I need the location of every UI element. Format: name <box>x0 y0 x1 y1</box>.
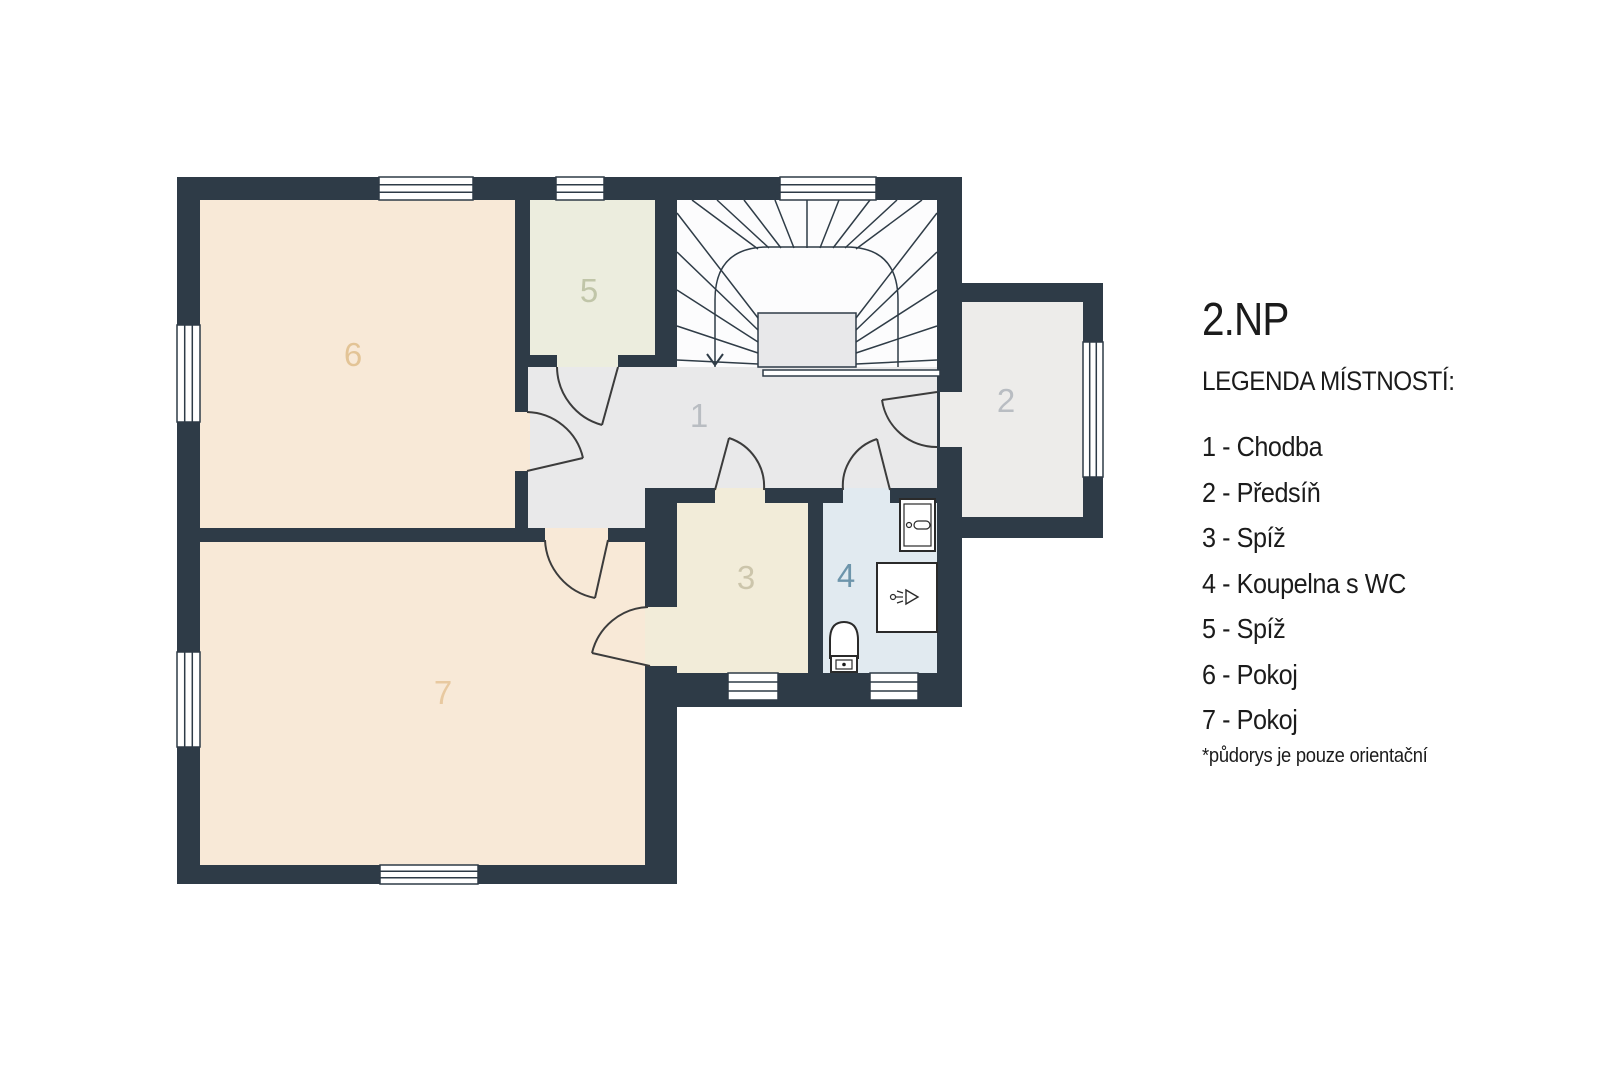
door-gap-room7-room3 <box>645 607 677 666</box>
window-top-room5 <box>556 177 604 200</box>
legend-heading: LEGENDA MÍSTNOSTÍ: <box>1202 366 1455 397</box>
window-left-room6 <box>177 325 200 422</box>
legend-item-4: 4 - Koupelna s WC <box>1202 561 1406 607</box>
legend-item-2: 2 - Předsíň <box>1202 470 1406 516</box>
door-gap-room6 <box>515 412 530 471</box>
window-bottom-room3 <box>728 673 778 700</box>
legend-items: 1 - Chodba 2 - Předsíň 3 - Spíž 4 - Koup… <box>1202 424 1429 743</box>
sink-icon <box>900 499 935 551</box>
window-top-stairs <box>780 177 876 200</box>
room-label-4: 4 <box>837 557 855 594</box>
legend-item-5: 5 - Spíž <box>1202 606 1406 652</box>
room-7-floor <box>200 542 645 865</box>
window-left-room7 <box>177 652 200 747</box>
room-label-5: 5 <box>580 272 598 309</box>
room-label-6: 6 <box>344 336 362 373</box>
room-label-3: 3 <box>737 559 755 596</box>
toilet-icon <box>830 622 858 672</box>
door-gap-room4 <box>843 488 890 503</box>
door-gap-room7 <box>545 528 608 542</box>
legend-footnote: *půdorys je pouze orientační <box>1202 745 1428 768</box>
window-top-room6 <box>379 177 473 200</box>
room-label-2: 2 <box>997 382 1015 419</box>
door-gap-room2 <box>940 392 962 447</box>
door-gap-room3 <box>715 488 765 503</box>
page-title: 2.NP <box>1202 292 1288 346</box>
window-right-room2 <box>1083 342 1103 477</box>
legend-item-3: 3 - Spíž <box>1202 515 1406 561</box>
room-2-floor <box>962 302 1083 517</box>
legend-item-1: 1 - Chodba <box>1202 424 1406 470</box>
legend-item-7: 7 - Pokoj <box>1202 697 1406 743</box>
room-label-1: 1 <box>690 397 708 434</box>
window-bottom-room4 <box>870 673 918 700</box>
legend-item-6: 6 - Pokoj <box>1202 652 1406 698</box>
door-gap-room5 <box>557 355 618 367</box>
window-bottom-room7 <box>380 865 478 884</box>
stair-handrail <box>763 370 940 376</box>
stair-void <box>758 313 856 367</box>
shower-icon <box>877 563 937 632</box>
room-label-7: 7 <box>434 674 452 711</box>
